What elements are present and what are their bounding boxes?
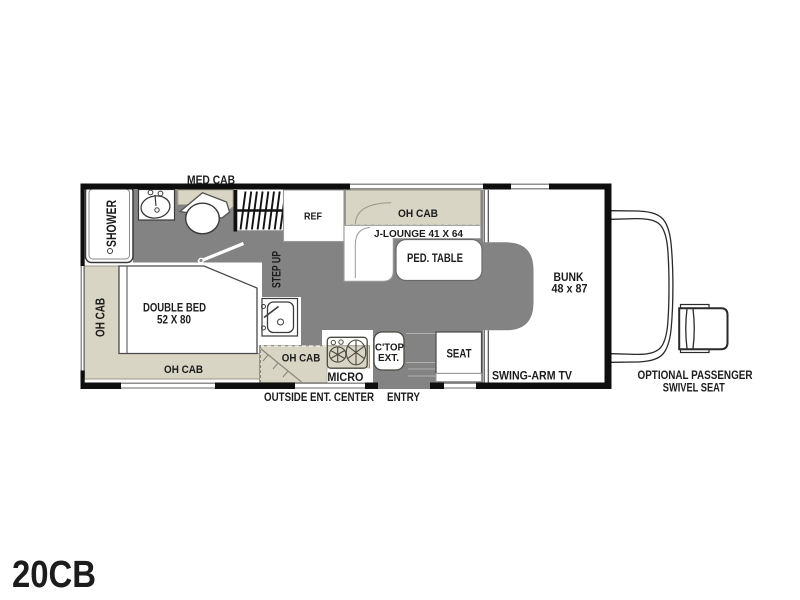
svg-text:SEAT: SEAT (447, 347, 473, 361)
svg-text:OH CAB: OH CAB (398, 208, 438, 220)
svg-text:EXT.: EXT. (378, 352, 399, 364)
svg-text:SWIVEL SEAT: SWIVEL SEAT (663, 383, 725, 395)
svg-text:SHOWER: SHOWER (103, 200, 119, 247)
svg-text:20CB: 20CB (12, 554, 96, 596)
svg-text:OPTIONAL PASSENGER: OPTIONAL PASSENGER (638, 370, 754, 382)
svg-text:REF: REF (304, 212, 322, 223)
svg-text:J-LOUNGE 41 X 64: J-LOUNGE 41 X 64 (374, 228, 463, 240)
svg-text:OH CAB: OH CAB (282, 353, 321, 365)
svg-text:SWING-ARM TV: SWING-ARM TV (492, 371, 572, 383)
svg-text:OUTSIDE ENT. CENTER: OUTSIDE ENT. CENTER (264, 392, 375, 404)
svg-text:MED CAB: MED CAB (187, 175, 235, 187)
svg-text:48 x 87: 48 x 87 (552, 284, 588, 296)
svg-text:OH CAB: OH CAB (164, 364, 203, 376)
svg-text:STEP UP: STEP UP (272, 251, 284, 288)
svg-text:BUNK: BUNK (554, 272, 585, 284)
svg-text:52 X 80: 52 X 80 (157, 313, 191, 327)
svg-text:PED. TABLE: PED. TABLE (407, 251, 463, 265)
svg-text:MICRO: MICRO (327, 370, 363, 384)
svg-text:ENTRY: ENTRY (387, 392, 420, 404)
svg-text:OH CAB: OH CAB (93, 298, 108, 337)
